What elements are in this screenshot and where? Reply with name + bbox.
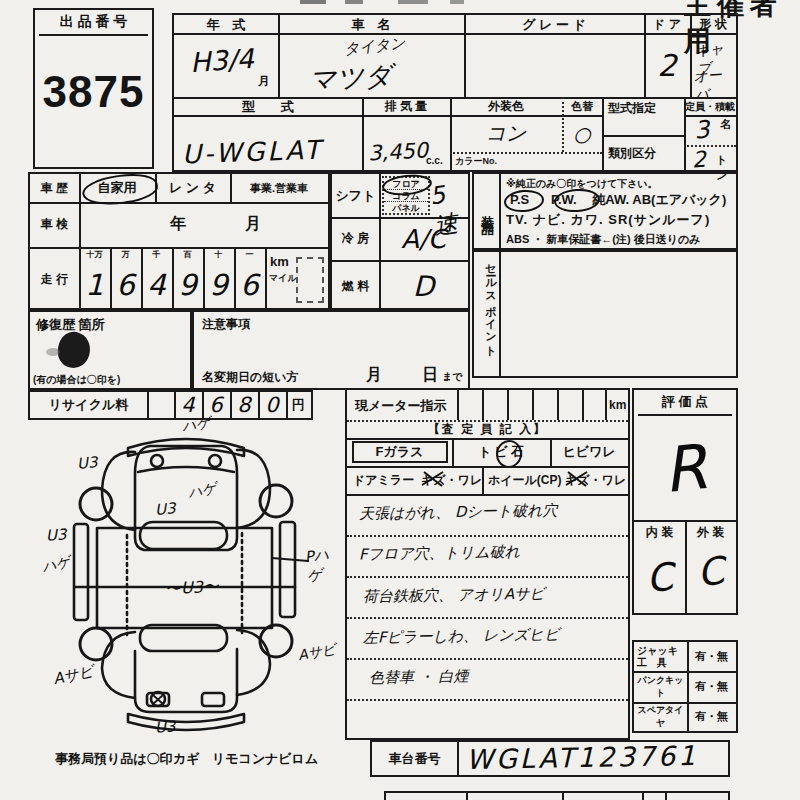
inspection-month: 月 — [245, 214, 261, 235]
recycle-digit: 0 — [258, 392, 286, 418]
divider — [582, 390, 584, 420]
history-option-business: 事業.営業車 — [230, 174, 328, 202]
mileage-unit-100: 百 — [172, 249, 203, 259]
model-value: U-WGLAT — [182, 135, 324, 170]
mileage-digit: 6 — [234, 260, 265, 310]
divider — [347, 535, 628, 537]
interior-grade: C — [631, 545, 688, 610]
mileage-unit-1: 一 — [234, 249, 265, 259]
divider — [464, 15, 466, 97]
divider — [499, 252, 501, 376]
repair-history-mark — [54, 329, 94, 372]
assessor-note: 左Fピラーしわ、 レンズヒビ — [363, 625, 560, 647]
displacement-label: 排 気 量 — [362, 98, 450, 115]
damage-diagram: ハゲ U3 ハゲ U3 U3 ハゲ 〜U3〜 Pハゲ Aサビ Aサビ U3 — [40, 418, 340, 740]
mileage-check-box — [296, 257, 324, 303]
divider — [665, 793, 667, 800]
history-label: 車 歴 — [30, 174, 79, 202]
load-value: 2 — [691, 147, 707, 173]
recycle-digit: 8 — [230, 392, 258, 418]
divider — [39, 34, 148, 36]
repair-history-mark-smudge — [46, 348, 60, 356]
capacity-value: 3 — [693, 115, 711, 144]
interior-label: 内 装 — [634, 523, 685, 541]
history-option-rental: レ ン タ — [155, 174, 230, 202]
exterior-color-value: コン — [450, 115, 562, 152]
equipment-label: 装備品 — [476, 174, 498, 248]
divider — [602, 135, 684, 137]
divider — [482, 390, 484, 420]
evaluation-score: R — [629, 415, 740, 521]
scan-artifact — [398, 0, 428, 4]
evaluation-box: 評 価 点 R 内 装 外 装 C C — [632, 388, 738, 615]
divider — [347, 466, 628, 468]
cutoff-table-row — [384, 791, 730, 800]
assessor-note: Fフロア穴、トリム破れ — [359, 543, 520, 565]
door-mirror-kizu: キズ・ワレ — [421, 472, 482, 489]
mileage-unit-10: 十 — [203, 249, 234, 259]
car-name-line2: マツダ — [308, 58, 393, 98]
divider — [482, 466, 484, 494]
scan-artifact — [345, 0, 363, 4]
deadline-day: 日 — [422, 365, 438, 386]
deadline-month: 月 — [366, 365, 382, 386]
car-name-label: 車 名 — [278, 16, 464, 33]
mileage-digit: 9 — [203, 260, 234, 310]
capacity-unit: 名 — [720, 117, 731, 132]
equipment-line3: ABS ・ 新車保証書←(注) 後日送りのみ — [506, 232, 701, 247]
year-label: 年 式 — [174, 16, 278, 33]
color-no-label: カラーNo. — [455, 155, 497, 168]
year-value: H3/4 — [189, 43, 255, 78]
damage-note: Pハゲ — [304, 544, 343, 586]
divider — [450, 152, 602, 154]
deposit-item-navirom: ナビロム — [265, 750, 318, 768]
damage-note: U3 — [45, 525, 67, 544]
scan-artifact — [450, 0, 464, 4]
recycle-digit: 4 — [174, 392, 202, 418]
mileage-mile-label: マイル — [269, 272, 297, 285]
recycle-fee-box: リサイクル料 4 6 8 0 円 — [28, 390, 313, 420]
divider — [347, 658, 628, 660]
exterior-grade: C — [681, 539, 740, 606]
divider — [457, 742, 459, 775]
mileage-unit-10k: 万 — [110, 249, 141, 259]
tobi-ishi-label: ト ビ 石 — [452, 438, 550, 466]
divider — [557, 390, 559, 420]
mileage-unit-1k: 千 — [141, 249, 172, 259]
cooling-value: A/C — [379, 217, 468, 260]
puncture-kit-label: パンクキット — [634, 671, 687, 702]
office-deposit-note: 事務局預り品は〇印 — [55, 750, 173, 768]
damage-note: 〜U3〜 — [164, 577, 219, 601]
divider — [362, 97, 364, 174]
recycle-yen-label: 円 — [286, 392, 311, 418]
divider — [147, 392, 149, 418]
wheel-label: ホイール(CP) — [488, 472, 562, 489]
mileage-digit: 6 — [110, 260, 141, 310]
divider — [265, 247, 267, 312]
repair-history-note: (有の場合は〇印を) — [33, 373, 120, 387]
divider — [605, 390, 607, 420]
shift-table: シフト フロア コラム パネル 5速 冷 房 A/C 燃 料 D — [330, 172, 470, 310]
evaluation-label: 評 価 点 — [634, 392, 736, 412]
mileage-digit: 4 — [141, 260, 172, 310]
damage-note: U3 — [154, 499, 176, 519]
scan-artifact — [300, 0, 326, 4]
damage-note: U3 — [154, 717, 176, 736]
divider — [347, 576, 628, 578]
mileage-label: 走 行 — [30, 247, 79, 312]
mileage-digit: 9 — [172, 260, 203, 310]
deposit-item-remote: リモコン — [212, 750, 265, 768]
divider — [507, 390, 509, 420]
year-month-suffix: 月 — [258, 73, 270, 90]
tobi-char: ト — [478, 443, 491, 461]
repair-history-box: 修復歴 箇所 (有の場合は〇印を) — [28, 310, 192, 390]
displacement-value: 3,450 — [367, 138, 428, 165]
jack-label-line2: 工 具 — [637, 656, 667, 670]
puncture-kit-value: 有・無 — [687, 671, 736, 702]
assessor-note: 荷台鉄板穴、 アオリAサビ — [363, 584, 545, 606]
shift-options-box: フロア コラム パネル — [382, 176, 430, 215]
inspection-label: 車 検 — [30, 202, 79, 247]
spare-tire-label: スペアタイヤ — [634, 702, 687, 731]
color-change-label: 色替 — [562, 98, 602, 115]
model-label: 型 式 — [174, 98, 362, 115]
assessor-header: 【査 定 員 記 入】 — [347, 421, 628, 438]
divider — [499, 174, 501, 248]
mileage-digit: 1 — [79, 260, 110, 310]
chassis-number-box: 車台番号 WGLAT123761 — [370, 740, 730, 777]
auction-number-label: 出 品 番 号 — [35, 12, 152, 32]
assessor-table: 現メーター指示 km 【査 定 員 記 入】 Fガラス ト ビ 石 ヒビワレ ド… — [345, 388, 630, 740]
divider — [690, 15, 692, 97]
damage-note: U3 — [76, 453, 98, 473]
auction-number-value: 3875 — [35, 58, 152, 126]
history-table: 車 歴 自家用 レ ン タ 事業.営業車 車 検 年 月 走 行 十万 万 千 … — [28, 172, 330, 310]
name-change-deadline-label: 名変期日の短い方 — [202, 369, 299, 386]
equipment-line1: P.S P.W. 純AW. AB(エアバック) — [506, 191, 726, 209]
mileage-unit-100k: 十万 — [79, 249, 110, 259]
equipment-line1-rest: 純AW. AB(エアバック) — [592, 192, 726, 207]
spare-tire-value: 有・無 — [687, 702, 736, 731]
car-name-line1: タイタン — [343, 34, 406, 59]
divider — [532, 390, 534, 420]
door-value: 2 — [644, 35, 690, 95]
recycle-fee-label: リサイクル料 — [30, 392, 147, 418]
divider — [347, 494, 628, 496]
divider — [347, 699, 628, 701]
auction-sheet: 主催者用 出 品 番 号 3875 年 式 車 名 グ レ ー ド ド ア 形 … — [0, 0, 800, 800]
jack-value: 有・無 — [687, 642, 736, 671]
door-mirror-label: ドアミラー — [353, 472, 414, 489]
assessor-note: 天張はがれ、 Dシート破れ穴 — [359, 501, 558, 523]
auction-number-box: 出 品 番 号 3875 — [33, 8, 154, 169]
hibiware-label: ヒビワレ — [550, 438, 628, 466]
displacement-unit: c.c. — [426, 155, 443, 166]
divider — [642, 793, 644, 800]
divider — [347, 617, 628, 619]
divider — [466, 793, 468, 800]
caution-label: 注意事項 — [202, 316, 250, 333]
chassis-number-value: WGLAT123761 — [466, 740, 699, 775]
meter-label: 現メーター指示 — [355, 397, 447, 415]
vehicle-spec-table: 年 式 車 名 グ レ ー ド ド ア 形 状 H3/4 月 タイタン マツダ … — [172, 13, 738, 172]
fuel-label: 燃 料 — [332, 260, 379, 312]
shape-label: 形 状 — [690, 16, 736, 33]
divider — [457, 390, 459, 420]
wheel-kizu: キズ・ワレ — [565, 472, 626, 489]
inspection-year: 年 — [170, 214, 186, 235]
sales-point-label: セールスポイント — [478, 256, 498, 376]
color-change-value: ○ — [562, 115, 602, 152]
door-label: ド ア — [644, 16, 690, 33]
caution-box: 注意事項 名変期日の短い方 月 日 まで — [192, 310, 470, 390]
chassis-number-label: 車台番号 — [372, 742, 457, 775]
sales-point-box: セールスポイント — [472, 250, 738, 378]
divider — [684, 97, 686, 174]
equipment-line2: TV. ナビ. カワ. SR(サンルーフ) — [506, 211, 710, 229]
grade-label: グ レ ー ド — [464, 16, 644, 33]
meter-unit: km — [609, 398, 626, 412]
divider — [278, 15, 280, 97]
accessories-box: ジャッキ 工 具 有・無 パンクキット 有・無 スペアタイヤ 有・無 — [632, 640, 738, 733]
divider — [562, 793, 564, 800]
fuel-value: D — [379, 260, 468, 312]
shift-option-panel: パネル — [384, 202, 428, 214]
cooling-label: 冷 房 — [332, 217, 379, 260]
mileage-km-label: km — [270, 254, 289, 269]
shift-label: シフト — [332, 174, 379, 217]
assessor-note: 色替車 ・ 白煙 — [369, 667, 469, 688]
deposit-item-key: カギ — [173, 750, 200, 768]
class-division-label: 類別区分 — [608, 145, 656, 162]
fglass-label: Fガラス — [347, 438, 452, 466]
capacity-label: 定員・積載 — [684, 98, 736, 115]
equipment-box: 装備品 ※純正のみ〇印をつけて下さい。 P.S P.W. 純AW. AB(エアバ… — [472, 172, 738, 250]
deadline-made: まで — [442, 370, 462, 384]
exterior-color-label: 外装色 — [450, 98, 562, 115]
type-designation-label: 型式指定 — [608, 100, 656, 117]
